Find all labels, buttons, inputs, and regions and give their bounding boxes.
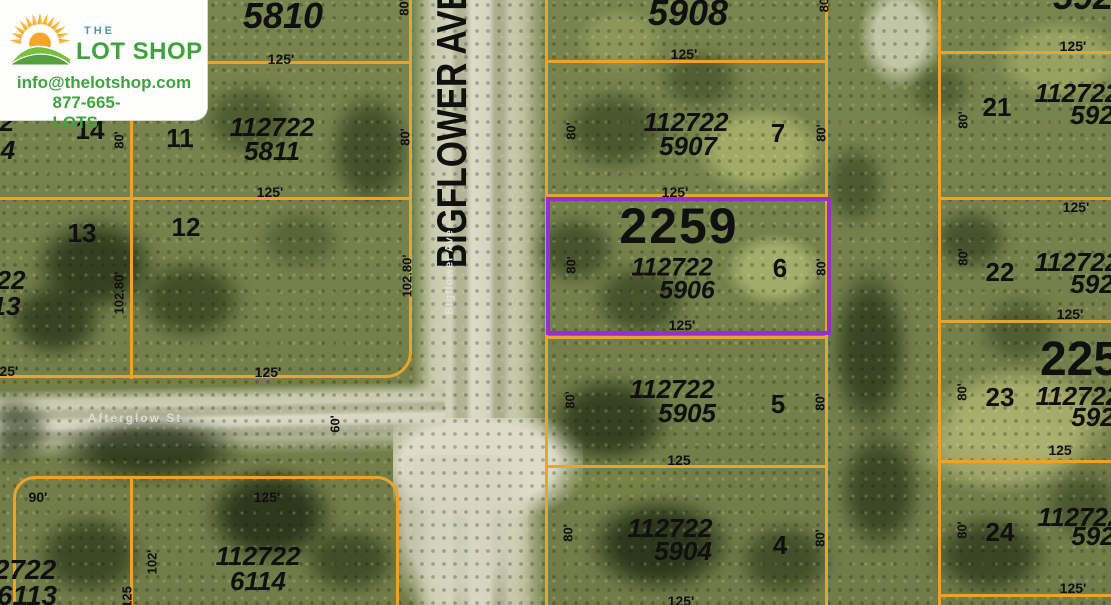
sun-hills-logo-icon — [8, 4, 72, 70]
lot-7: 7 — [771, 120, 785, 146]
parcel-5906-line2: 5906 — [659, 279, 715, 304]
dim-125-lot22: 125' — [1063, 200, 1090, 214]
dim-125-lot23: 125 — [1048, 443, 1071, 457]
dim-102-6114: 102' — [146, 550, 159, 575]
parcel-top-right-partial: 592 — [1053, 0, 1111, 15]
parcel-5904-line2: 5904 — [654, 538, 712, 564]
dim-125-5907: 125' — [662, 185, 689, 199]
street-afterglow: Afterglow St — [88, 412, 183, 424]
street-bigflower-small: Bigflower Ave — [445, 229, 456, 315]
parcel-5922-line2: 592 — [1070, 271, 1111, 297]
dim-80-22: 80' — [957, 248, 970, 266]
parcel-edge-4: 4 — [1, 137, 15, 163]
dim-80-21: 80' — [957, 111, 970, 129]
dim-80-5906-e: 80' — [815, 258, 828, 276]
parcel-6114-line2: 6114 — [230, 568, 286, 594]
lot-4: 4 — [773, 532, 787, 558]
dim-102-80-west: 102.80' — [401, 255, 414, 298]
brand-name-label: LOT SHOP — [76, 38, 203, 66]
dim-80-5907-w: 80' — [565, 122, 578, 140]
parcel-5810: 5810 — [243, 0, 323, 34]
dim-80-5905-e: 80' — [814, 393, 827, 411]
highlight-lot-id: 2259 — [619, 201, 738, 251]
parcel-6113-line2: 6113 — [0, 582, 57, 605]
lot-22: 22 — [986, 259, 1015, 285]
dim-90: 90' — [29, 490, 48, 504]
parcel-5923-line2: 592 — [1071, 404, 1111, 430]
parcel-5921-line2: 592 — [1070, 102, 1111, 128]
lot-13: 13 — [68, 220, 97, 246]
dim-80-5904-e: 80' — [814, 529, 827, 547]
parcel-5811-line2: 5811 — [244, 138, 300, 164]
dim-102-80-left: 102.80' — [113, 272, 126, 315]
parcel-edge-22: 22 — [0, 267, 25, 293]
dim-80-west-top: 80' — [398, 0, 411, 16]
dim-125-lot22-b: 125' — [1057, 307, 1084, 321]
dim-80-west: 80' — [399, 128, 412, 146]
lot-24: 24 — [986, 519, 1015, 545]
dim-80-5904-w: 80' — [562, 524, 575, 542]
brand-phone: 877-665-LOTS — [53, 93, 156, 133]
lot-23: 23 — [986, 384, 1015, 410]
lot-11: 11 — [166, 125, 194, 151]
logo-card: THE LOT SHOP info@thelotshop.com 877-665… — [0, 0, 208, 121]
lot-12: 12 — [172, 214, 201, 240]
dim-80-23: 80' — [956, 383, 969, 401]
dim-125-5905: 125 — [667, 453, 690, 467]
lot-6: 6 — [773, 255, 787, 281]
aerial-lot-map: 5810125'112722581180'80'125'141180'13121… — [0, 0, 1111, 605]
dim-80-5906-w: 80' — [565, 256, 578, 274]
dim-125-5908: 125' — [671, 47, 698, 61]
dim-80-5905-w: 80' — [564, 391, 577, 409]
dim-60-intersection: 60' — [329, 415, 342, 433]
dim-125-5810: 125' — [268, 52, 295, 66]
dim-80-24: 80' — [956, 521, 969, 539]
section-225: 225 — [1040, 336, 1111, 384]
dim-125-5904: 125' — [668, 594, 695, 605]
brand-email: info@thelotshop.com — [17, 73, 191, 93]
parcel-5905-line2: 5905 — [658, 400, 716, 426]
lot-21: 21 — [983, 94, 1012, 120]
dim-80-left-block: 80' — [113, 131, 126, 149]
dim-125-lot21: 125' — [1060, 39, 1087, 53]
dim-125-left-edge: 125' — [0, 364, 18, 378]
dim-80-mid-e-top: 80 — [818, 0, 831, 12]
street-bigflower-ave: BIGFLOWER AVE — [431, 0, 473, 268]
brand-the-label: THE — [84, 25, 115, 37]
parcel-5907-line2: 5907 — [659, 133, 717, 159]
parcel-5924-line2: 592 — [1071, 523, 1111, 549]
dim-80-5907-e: 80' — [815, 124, 828, 142]
dim-125-afterglow: 125' — [255, 365, 282, 379]
dim-125-6114: 125' — [254, 490, 281, 504]
parcel-edge-13: 13 — [0, 293, 20, 319]
dim-125-5906: 125' — [669, 318, 696, 332]
parcel-5908: 5908 — [648, 0, 728, 31]
lot-5: 5 — [771, 391, 785, 417]
dim-125-6113: 125 — [121, 586, 134, 605]
dim-125-5811: 125' — [257, 185, 284, 199]
dim-125-lot24: 125' — [1060, 581, 1087, 595]
